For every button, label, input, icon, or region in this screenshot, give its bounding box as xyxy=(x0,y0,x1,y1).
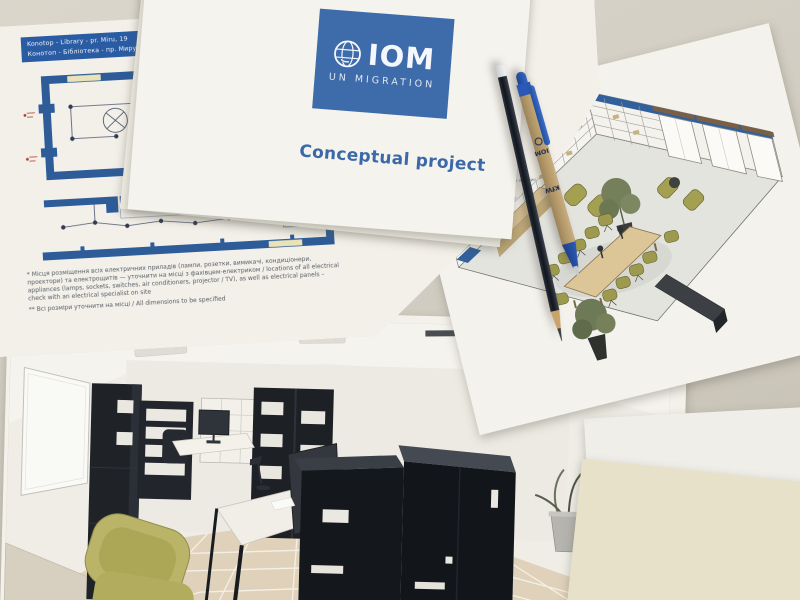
iom-logo: IOM UN MIGRATION xyxy=(312,9,454,119)
photo-scene: Konotop - Library - pr. Miru, 19 Конотоп… xyxy=(0,0,800,600)
pen-print-iom: IOM xyxy=(534,146,550,158)
concept-title: Conceptual project xyxy=(282,140,503,177)
blank-sheet-cream xyxy=(563,459,800,600)
iom-globe-icon xyxy=(332,37,364,69)
render-whiteboard xyxy=(21,367,90,497)
pen-tip-metal xyxy=(573,265,580,275)
iom-acronym: IOM xyxy=(367,41,436,75)
concept-sheet: IOM UN MIGRATION Conceptual project xyxy=(128,0,534,239)
plan-red-annotations xyxy=(24,113,38,162)
pen-print-kfw: KfW xyxy=(544,183,561,195)
